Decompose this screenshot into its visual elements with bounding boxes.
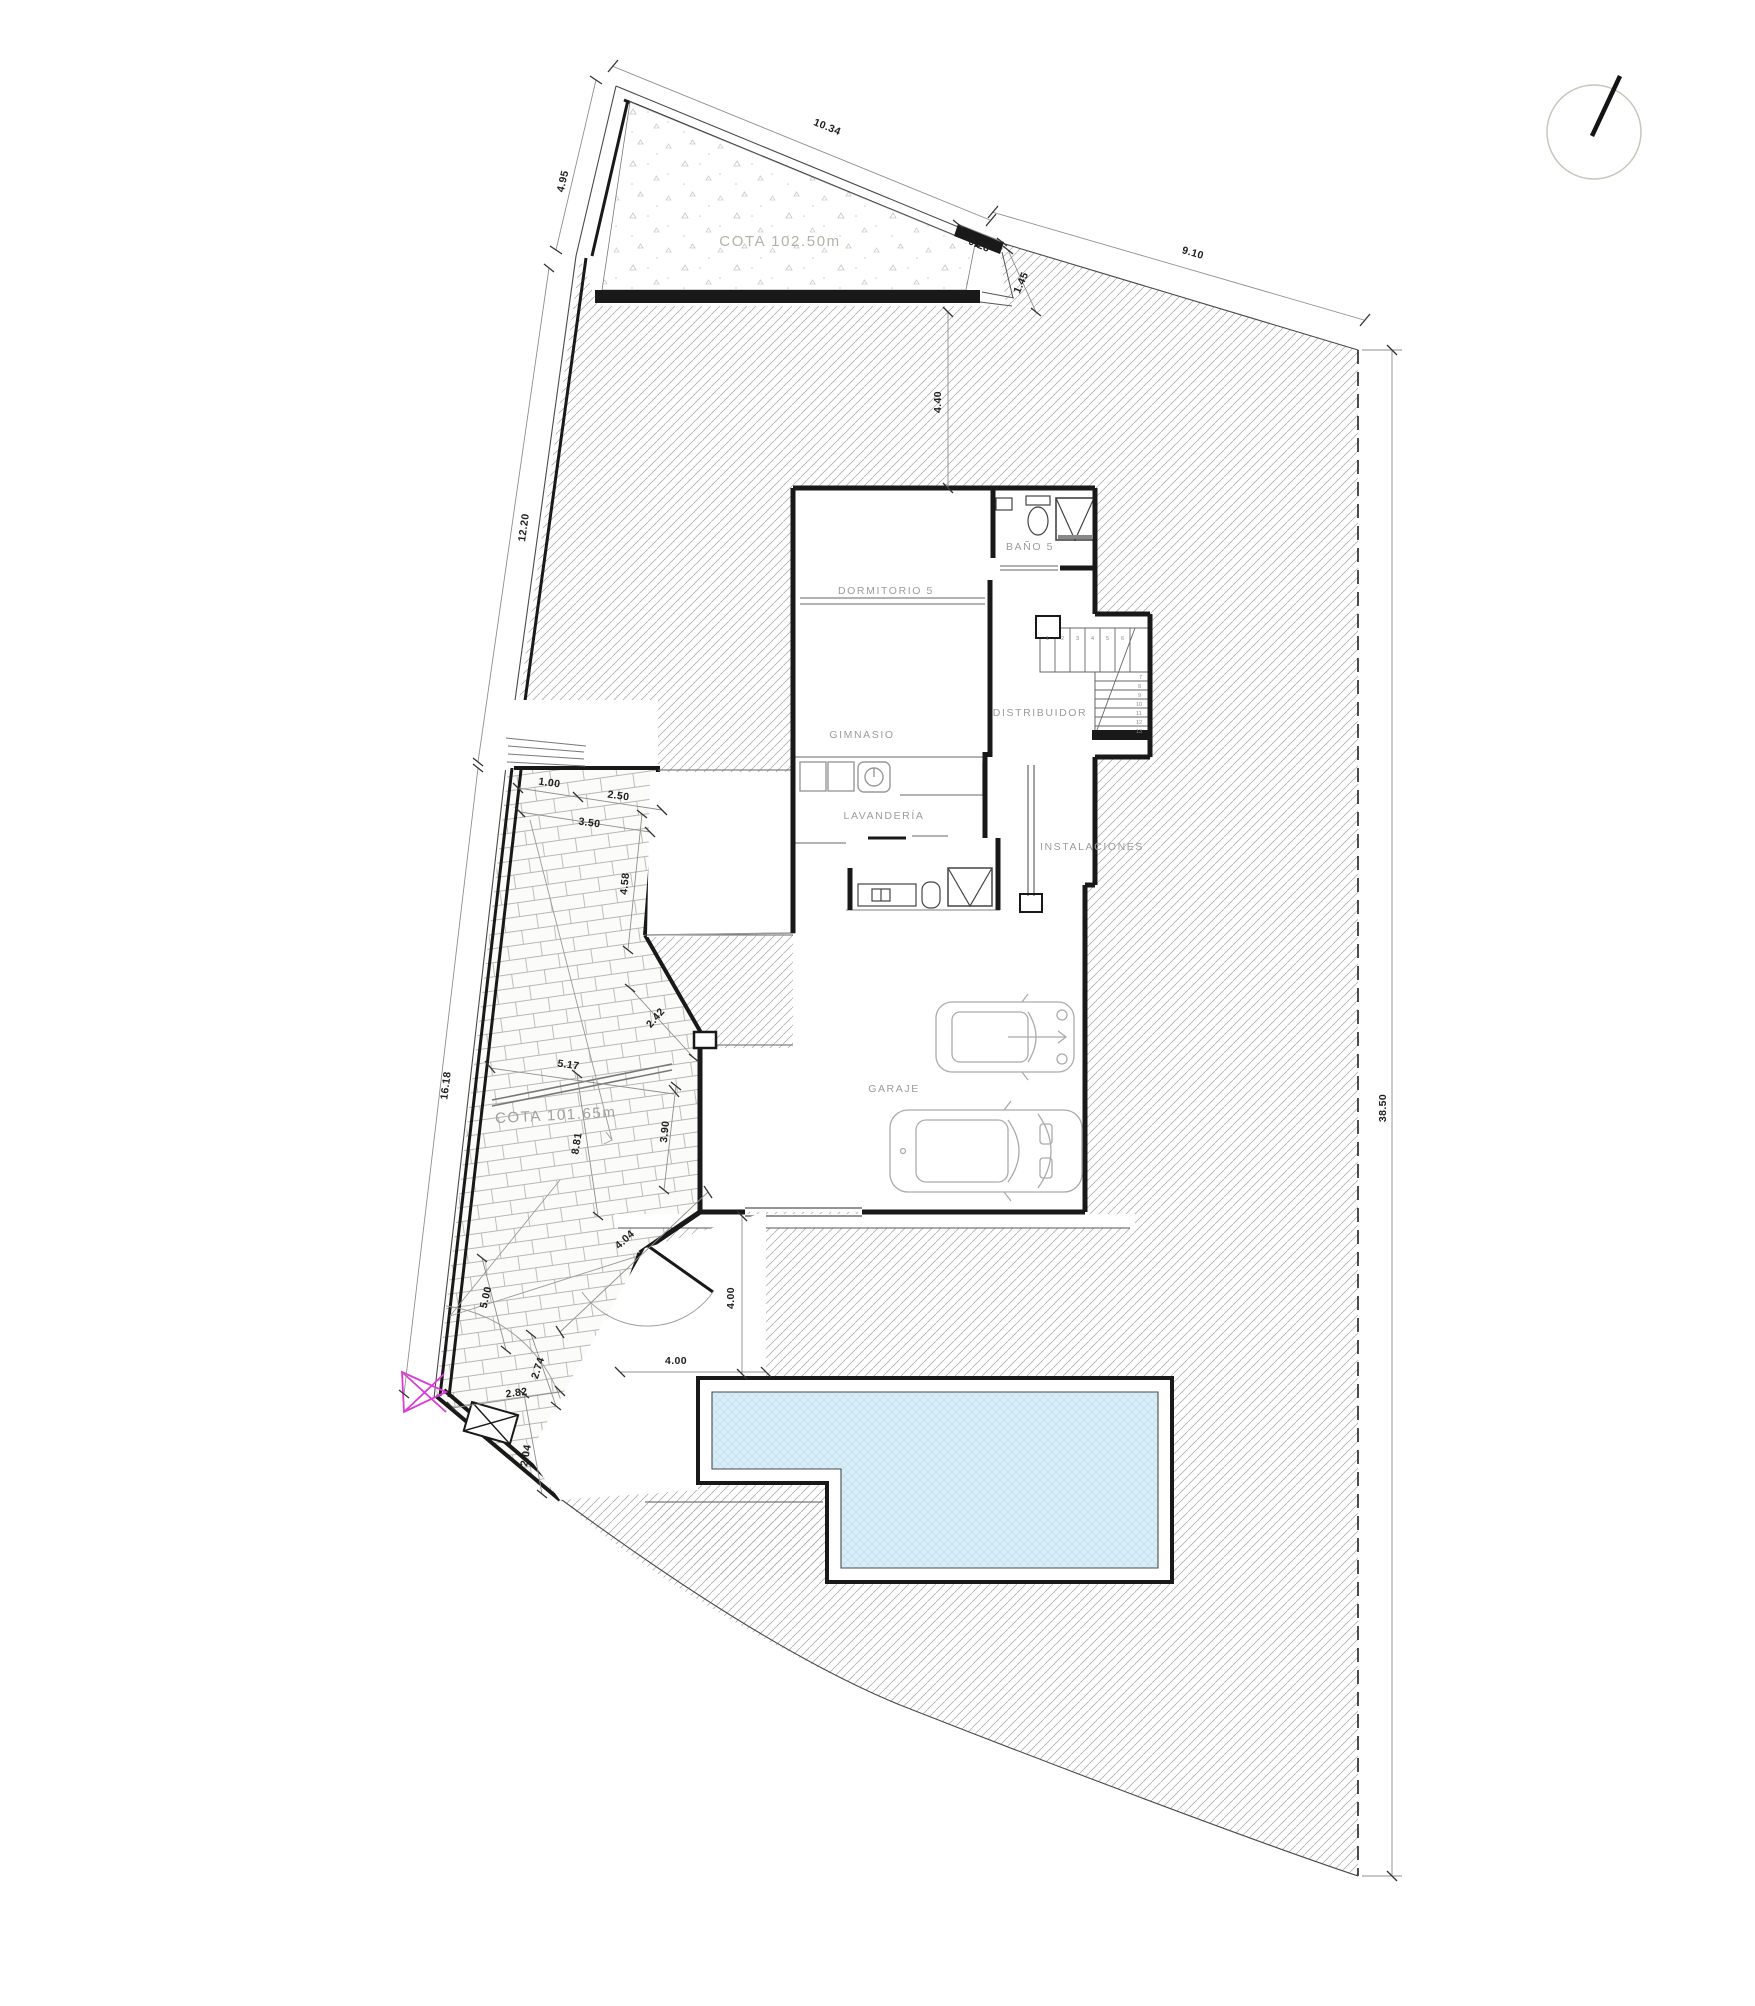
tread-11: 11	[1136, 711, 1142, 717]
room-lavanderia-label: LAVANDERÍA	[844, 809, 925, 822]
tread-12: 12	[1136, 720, 1142, 726]
dim-courtyard-length: 3.90	[658, 1120, 672, 1143]
tread-8: 8	[1138, 684, 1141, 690]
room-gimnasio-label: GIMNASIO	[829, 729, 894, 741]
floor-plan-drawing: 1 2 3 4 5 6 7 8 9 10 11 12 13	[0, 0, 1755, 2001]
dim-terrace-upper-length: 4.58	[618, 872, 632, 895]
tread-9: 9	[1138, 693, 1141, 699]
room-garaje-label: GARAJE	[868, 1083, 920, 1095]
dim-left-edge-mid: 12.20	[516, 513, 532, 543]
tread-10: 10	[1136, 702, 1142, 708]
dim-left-edge-lower: 16.18	[438, 1071, 453, 1101]
tread-4: 4	[1091, 636, 1094, 642]
terrain-stipple	[602, 102, 975, 290]
room-instalaciones-label: INSTALACIONES	[1040, 841, 1144, 853]
room-dormitorio5-label: DORMITORIO 5	[838, 585, 934, 597]
room-distribuidor-label: DISTRIBUIDOR	[993, 707, 1087, 719]
terrace-top-pocket	[500, 700, 658, 770]
north-arrow-icon	[1547, 76, 1641, 179]
tread-6: 6	[1121, 636, 1124, 642]
dim-entry-width: 4.00	[665, 1355, 687, 1367]
tread-2: 2	[1061, 636, 1064, 642]
courtyard-column	[694, 1032, 716, 1048]
dim-left-edge-top: 4.95	[555, 169, 572, 193]
dim-top-edge-upper: 10.34	[812, 116, 843, 138]
tread-3: 3	[1076, 636, 1079, 642]
room-bano5-label: BAÑO 5	[1006, 540, 1054, 553]
side-corridor-floor	[647, 772, 793, 937]
dim-garden-depth: 4.40	[932, 391, 944, 413]
tread-5: 5	[1106, 636, 1109, 642]
tread-13: 13	[1136, 729, 1142, 735]
dim-right-edge: 38.50	[1377, 1094, 1389, 1122]
floor-plan-page: 1 2 3 4 5 6 7 8 9 10 11 12 13	[0, 0, 1755, 2001]
dim-entry-depth: 4.00	[725, 1287, 737, 1309]
tread-7: 7	[1139, 675, 1142, 681]
dim-top-edge-right: 9.10	[1181, 244, 1206, 262]
stair-column	[1036, 616, 1060, 638]
cota-upper-label: COTA 102.50m	[719, 233, 840, 250]
retaining-wall-top	[595, 290, 980, 303]
tread-1: 1	[1046, 636, 1049, 642]
shower-drain	[1058, 535, 1092, 539]
